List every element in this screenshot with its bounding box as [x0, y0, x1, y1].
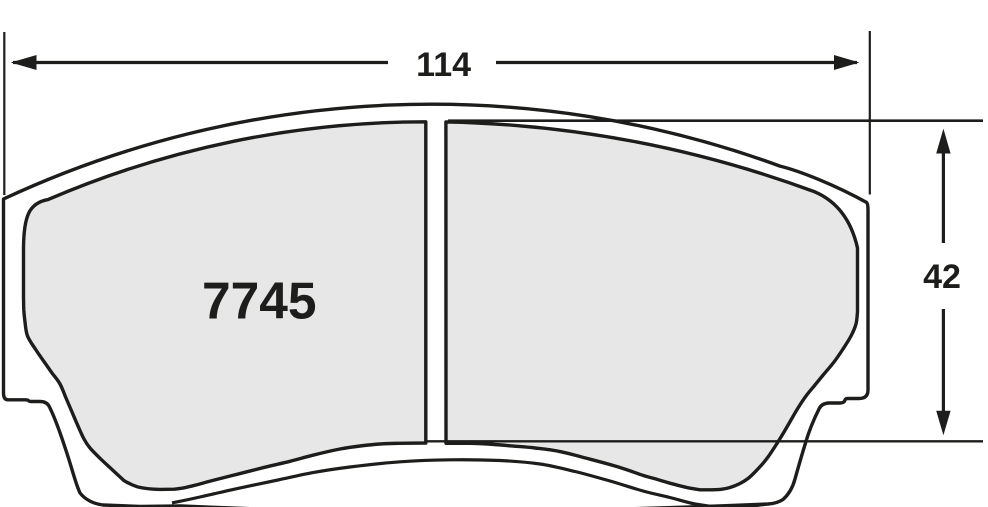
- svg-text:7745: 7745: [202, 271, 317, 329]
- svg-text:114: 114: [416, 46, 471, 84]
- svg-text:42: 42: [923, 258, 961, 296]
